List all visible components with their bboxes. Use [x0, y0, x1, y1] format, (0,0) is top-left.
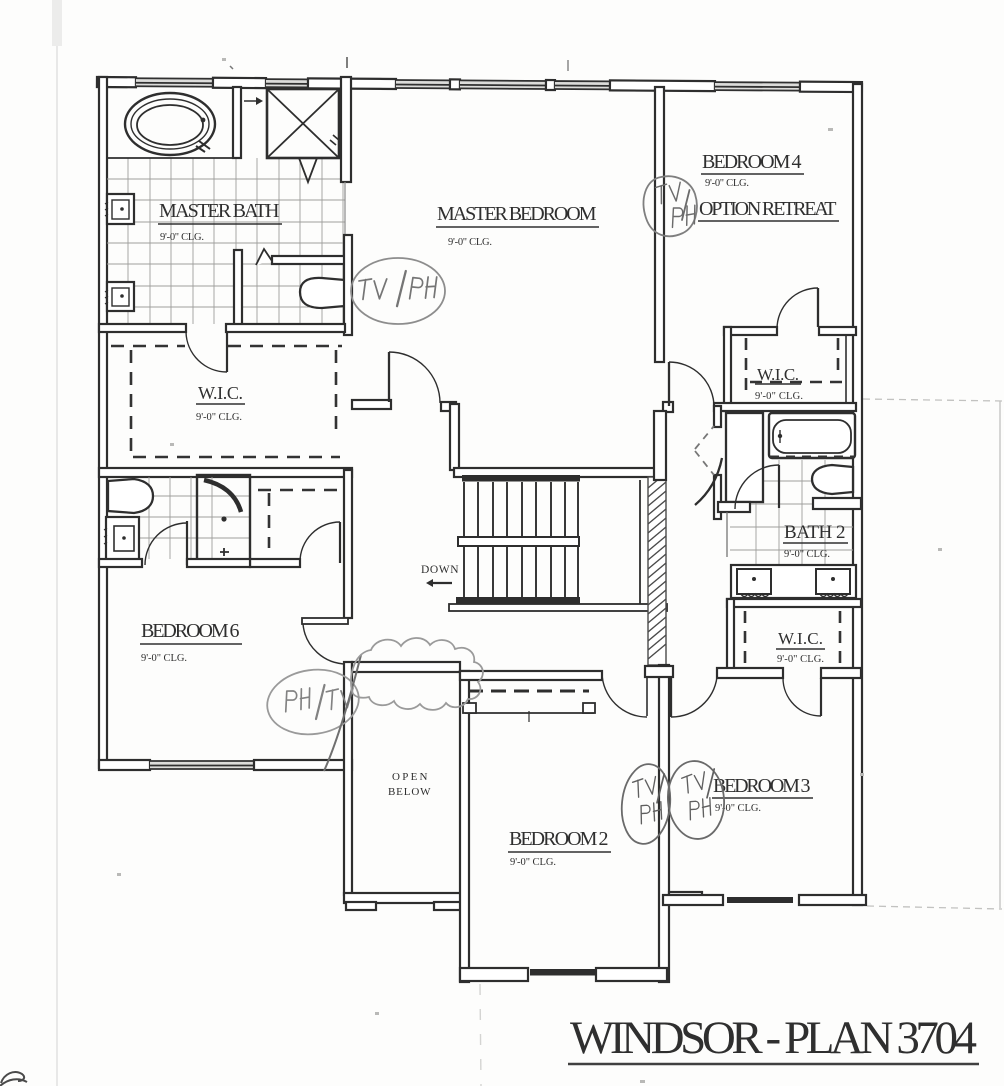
- svg-text:9'-0" CLG.: 9'-0" CLG.: [784, 549, 830, 560]
- svg-text:9'-0" CLG.: 9'-0" CLG.: [448, 237, 492, 248]
- svg-text:9'-0" CLG.: 9'-0" CLG.: [160, 232, 204, 243]
- svg-text:9'-0" CLG.: 9'-0" CLG.: [715, 803, 761, 814]
- svg-text:9'-0" CLG.: 9'-0" CLG.: [196, 412, 242, 423]
- svg-text:W.I.C.: W.I.C.: [757, 365, 799, 384]
- svg-text:BEDROOM 2: BEDROOM 2: [509, 828, 609, 850]
- svg-text:DOWN: DOWN: [421, 564, 459, 576]
- svg-text:OPEN: OPEN: [392, 771, 428, 783]
- svg-text:OPTION RETREAT: OPTION RETREAT: [699, 198, 837, 220]
- svg-text:9'-0" CLG.: 9'-0" CLG.: [141, 653, 187, 664]
- svg-text:BELOW: BELOW: [388, 786, 431, 798]
- svg-text:9'-0" CLG.: 9'-0" CLG.: [755, 391, 803, 402]
- svg-text:9'-0" CLG.: 9'-0" CLG.: [510, 857, 556, 868]
- svg-text:W.I.C.: W.I.C.: [778, 629, 823, 648]
- svg-text:BATH 2: BATH 2: [784, 522, 846, 543]
- svg-text:BEDROOM 4: BEDROOM 4: [702, 151, 802, 173]
- svg-text:W.I.C.: W.I.C.: [198, 383, 243, 403]
- svg-text:BEDROOM 6: BEDROOM 6: [141, 620, 240, 642]
- svg-text:WINDSOR - PLAN 3704: WINDSOR - PLAN 3704: [570, 1012, 978, 1064]
- svg-text:MASTER BEDROOM: MASTER BEDROOM: [437, 203, 597, 225]
- svg-text:BEDROOM 3: BEDROOM 3: [713, 775, 811, 797]
- svg-text:MASTER BATH: MASTER BATH: [159, 200, 280, 222]
- svg-text:9'-0" CLG.: 9'-0" CLG.: [705, 178, 749, 189]
- svg-text:9'-0" CLG.: 9'-0" CLG.: [777, 654, 824, 665]
